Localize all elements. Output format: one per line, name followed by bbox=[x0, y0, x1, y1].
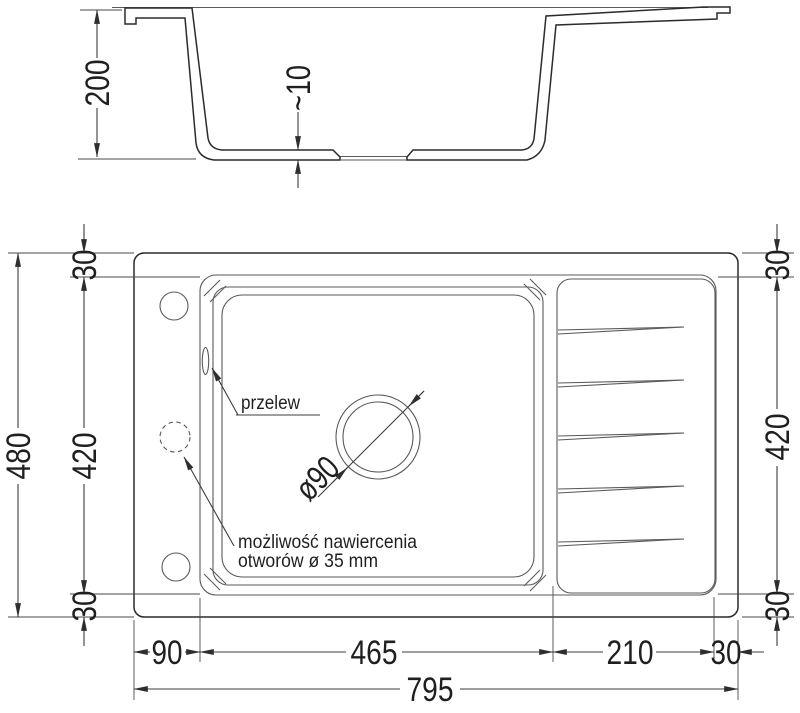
dim-text-480: 480 bbox=[0, 433, 38, 480]
dim-text-drain: ø90 bbox=[288, 449, 347, 508]
leader-line bbox=[212, 368, 238, 415]
dim-text-200: 200 bbox=[79, 60, 117, 107]
plan-dimensions-bottom: 90 465 210 30 795 bbox=[134, 586, 764, 709]
dim-bottom-thickness: ~10 bbox=[280, 65, 318, 188]
dim-text-30: 30 bbox=[759, 250, 797, 281]
tap-hole-bottom bbox=[162, 553, 190, 581]
dim-text-795: 795 bbox=[407, 671, 454, 709]
dim-left-offset: 90 bbox=[134, 634, 200, 672]
drill-note-line2: otworów ø 35 mm bbox=[238, 550, 378, 572]
dim-text-30: 30 bbox=[66, 591, 104, 622]
overflow-label: przelew bbox=[241, 392, 301, 414]
dim-text-10: ~10 bbox=[280, 65, 318, 111]
dim-border-top-right: 30 bbox=[759, 224, 797, 281]
dim-overall-length: 795 bbox=[134, 671, 738, 709]
dim-text-420: 420 bbox=[66, 433, 104, 480]
dim-border-bottom-left: 30 bbox=[66, 591, 104, 647]
plan-view: ø90 przelew możliwość nawiercenia otworó… bbox=[134, 253, 738, 617]
dim-text-420: 420 bbox=[759, 414, 797, 461]
leader-line bbox=[184, 457, 234, 546]
dim-text-30: 30 bbox=[66, 250, 104, 281]
dim-text-210: 210 bbox=[607, 634, 654, 672]
overflow-slot bbox=[202, 348, 208, 375]
dim-border-top-left: 30 bbox=[66, 224, 104, 281]
dim-overall-depth: 480 bbox=[0, 253, 38, 617]
sink-technical-drawing: 200 ~10 bbox=[0, 0, 800, 713]
drill-hole-dashed bbox=[160, 422, 190, 452]
dim-text-30: 30 bbox=[759, 591, 797, 622]
dim-border-right-end: 30 bbox=[711, 634, 765, 672]
dim-border-bottom-right: 30 bbox=[759, 591, 797, 647]
dim-inner-depth-right: 420 bbox=[759, 277, 797, 594]
section-right-wall-drainboard bbox=[407, 7, 730, 160]
overflow-callout: przelew bbox=[212, 368, 320, 415]
tap-hole-top bbox=[160, 292, 188, 320]
dim-text-465: 465 bbox=[351, 634, 398, 672]
drainboard-ridges bbox=[558, 327, 684, 546]
dim-text-30: 30 bbox=[711, 634, 742, 672]
dim-section-depth: 200 bbox=[78, 10, 196, 159]
dim-drain-diameter: ø90 bbox=[288, 391, 424, 508]
dim-drainer-length: 210 bbox=[553, 634, 714, 672]
dim-inner-depth-left: 420 bbox=[66, 277, 104, 594]
dim-arrow-line bbox=[409, 391, 424, 406]
section-view: 200 ~10 bbox=[78, 7, 730, 188]
plan-dimensions-left: 480 30 420 30 bbox=[0, 224, 200, 646]
dim-bowl-length: 465 bbox=[200, 634, 553, 672]
technical-drawing-page: 200 ~10 bbox=[0, 0, 800, 713]
plan-dimensions-right: 30 420 30 bbox=[718, 224, 797, 646]
dim-text-90: 90 bbox=[152, 634, 183, 672]
